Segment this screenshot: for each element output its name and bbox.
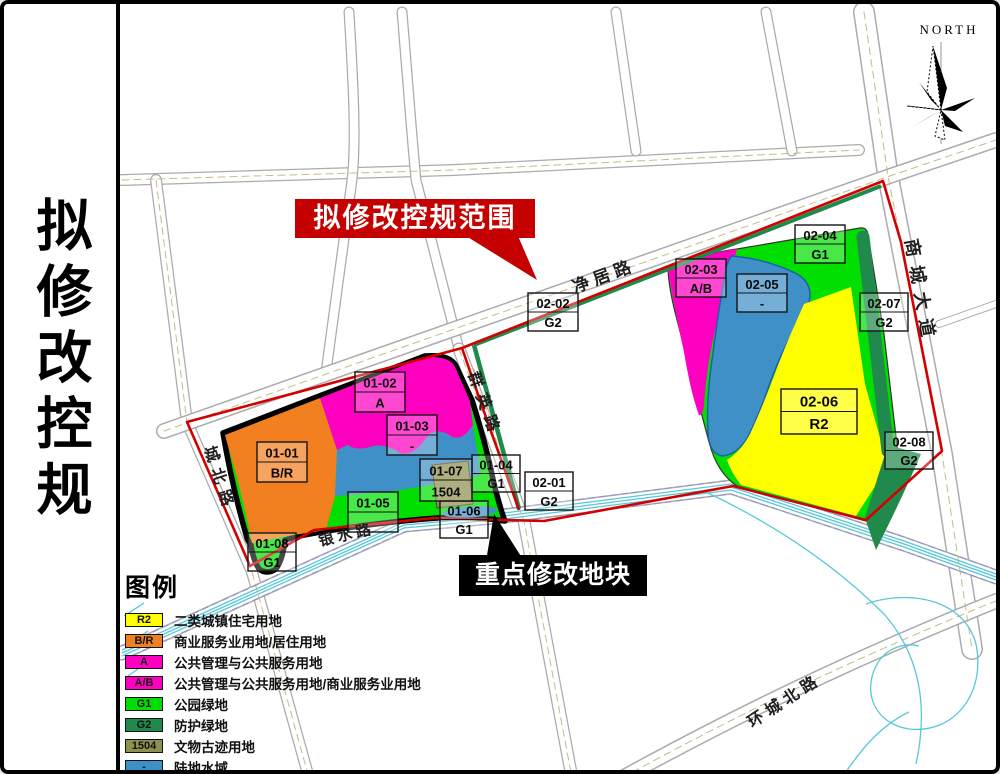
parcel-label-02-03: 02-03A/B: [676, 259, 726, 297]
svg-text:02-06: 02-06: [800, 394, 838, 411]
legend-swatch-water: -: [125, 760, 163, 774]
svg-text:01-05: 01-05: [356, 496, 389, 511]
legend-item-r2: R2二类城镇住宅用地: [125, 613, 421, 627]
legend-swatch-1504: 1504: [125, 739, 163, 753]
parcel-label-02-06: 02-06R2: [781, 389, 857, 434]
parcel-label-01-02: 01-02A: [355, 372, 405, 412]
svg-text:01-07: 01-07: [429, 464, 462, 479]
svg-text:-: -: [760, 296, 764, 311]
parcel-label-02-01: 02-01G2: [525, 472, 573, 510]
legend-item-1504: 1504文物古迹用地: [125, 739, 421, 753]
parcel-label-01-07: 01-071504: [420, 459, 472, 501]
parcel-label-01-08: 01-08G1: [248, 533, 296, 571]
legend-item-a: A公共管理与公共服务用地: [125, 655, 421, 669]
side-title-panel: 拟修改控规: [4, 4, 120, 770]
svg-text:1504: 1504: [432, 485, 462, 500]
parcel-label-02-04: 02-04G1: [795, 225, 845, 263]
parcel-label-01-01: 01-01B/R: [257, 442, 307, 482]
legend-swatch-r2: R2: [125, 613, 163, 627]
svg-text:02-07: 02-07: [867, 296, 900, 311]
svg-text:01-04: 01-04: [479, 458, 513, 473]
svg-text:G2: G2: [875, 315, 892, 330]
svg-text:R2: R2: [809, 416, 828, 433]
parcel-label-01-06: 01-06G1: [440, 501, 488, 538]
svg-text:-: -: [410, 439, 414, 454]
svg-text:G2: G2: [544, 315, 561, 330]
svg-text:A: A: [375, 396, 385, 411]
svg-text:01-03: 01-03: [395, 419, 428, 434]
north-arrow: NORTH: [907, 22, 979, 144]
legend-item-br: B/R商业服务业用地/居住用地: [125, 634, 421, 648]
svg-text:G1: G1: [487, 476, 504, 491]
parcel-label-01-04: 01-04G1: [472, 455, 520, 492]
svg-text:02-08: 02-08: [892, 435, 925, 450]
legend-swatch-br: B/R: [125, 634, 163, 648]
svg-text:01-02: 01-02: [363, 376, 396, 391]
scope-banner-tail: [466, 236, 537, 280]
legend: 图例 R2二类城镇住宅用地 B/R商业服务业用地/居住用地 A公共管理与公共服务…: [125, 568, 421, 774]
parcel-label-02-08: 02-08G2: [885, 432, 933, 469]
legend-item-g1: G1公园绿地: [125, 697, 421, 711]
svg-text:G1: G1: [455, 522, 472, 537]
legend-swatch-g1: G1: [125, 697, 163, 711]
svg-text:A/B: A/B: [690, 281, 712, 296]
parcel-label-02-07: 02-07G2: [860, 293, 908, 331]
svg-text:01-01: 01-01: [265, 446, 298, 461]
key-parcel-banner: 重点修改地块: [459, 555, 647, 596]
legend-swatch-ab: A/B: [125, 676, 163, 690]
parcel-label-02-02: 02-02G2: [528, 293, 578, 331]
scope-banner: 拟修改控规范围: [295, 199, 535, 238]
svg-text:02-01: 02-01: [532, 475, 565, 490]
svg-text:01-08: 01-08: [255, 536, 288, 551]
legend-item-ab: A/B公共管理与公共服务用地/商业服务业用地: [125, 676, 421, 690]
planning-map-page: 拟修改控规: [0, 0, 1000, 774]
north-label: NORTH: [920, 22, 979, 37]
parcel-label-02-05: 02-05-: [737, 274, 787, 312]
legend-item-water: -陆地水域: [125, 760, 421, 774]
svg-text:B/R: B/R: [271, 466, 294, 481]
svg-text:02-03: 02-03: [684, 262, 717, 277]
parcel-label-01-03: 01-03-: [387, 415, 437, 455]
svg-text:02-05: 02-05: [745, 277, 778, 292]
svg-text:G1: G1: [811, 247, 828, 262]
svg-text:01-06: 01-06: [447, 504, 480, 519]
legend-swatch-g2: G2: [125, 718, 163, 732]
svg-text:G2: G2: [900, 453, 917, 468]
page-title: 拟修改控规: [32, 196, 88, 526]
legend-swatch-a: A: [125, 655, 163, 669]
svg-text:02-04: 02-04: [803, 228, 837, 243]
svg-text:02-02: 02-02: [536, 296, 569, 311]
svg-text:G2: G2: [540, 494, 557, 509]
legend-item-g2: G2防护绿地: [125, 718, 421, 732]
legend-title: 图例: [125, 568, 421, 604]
